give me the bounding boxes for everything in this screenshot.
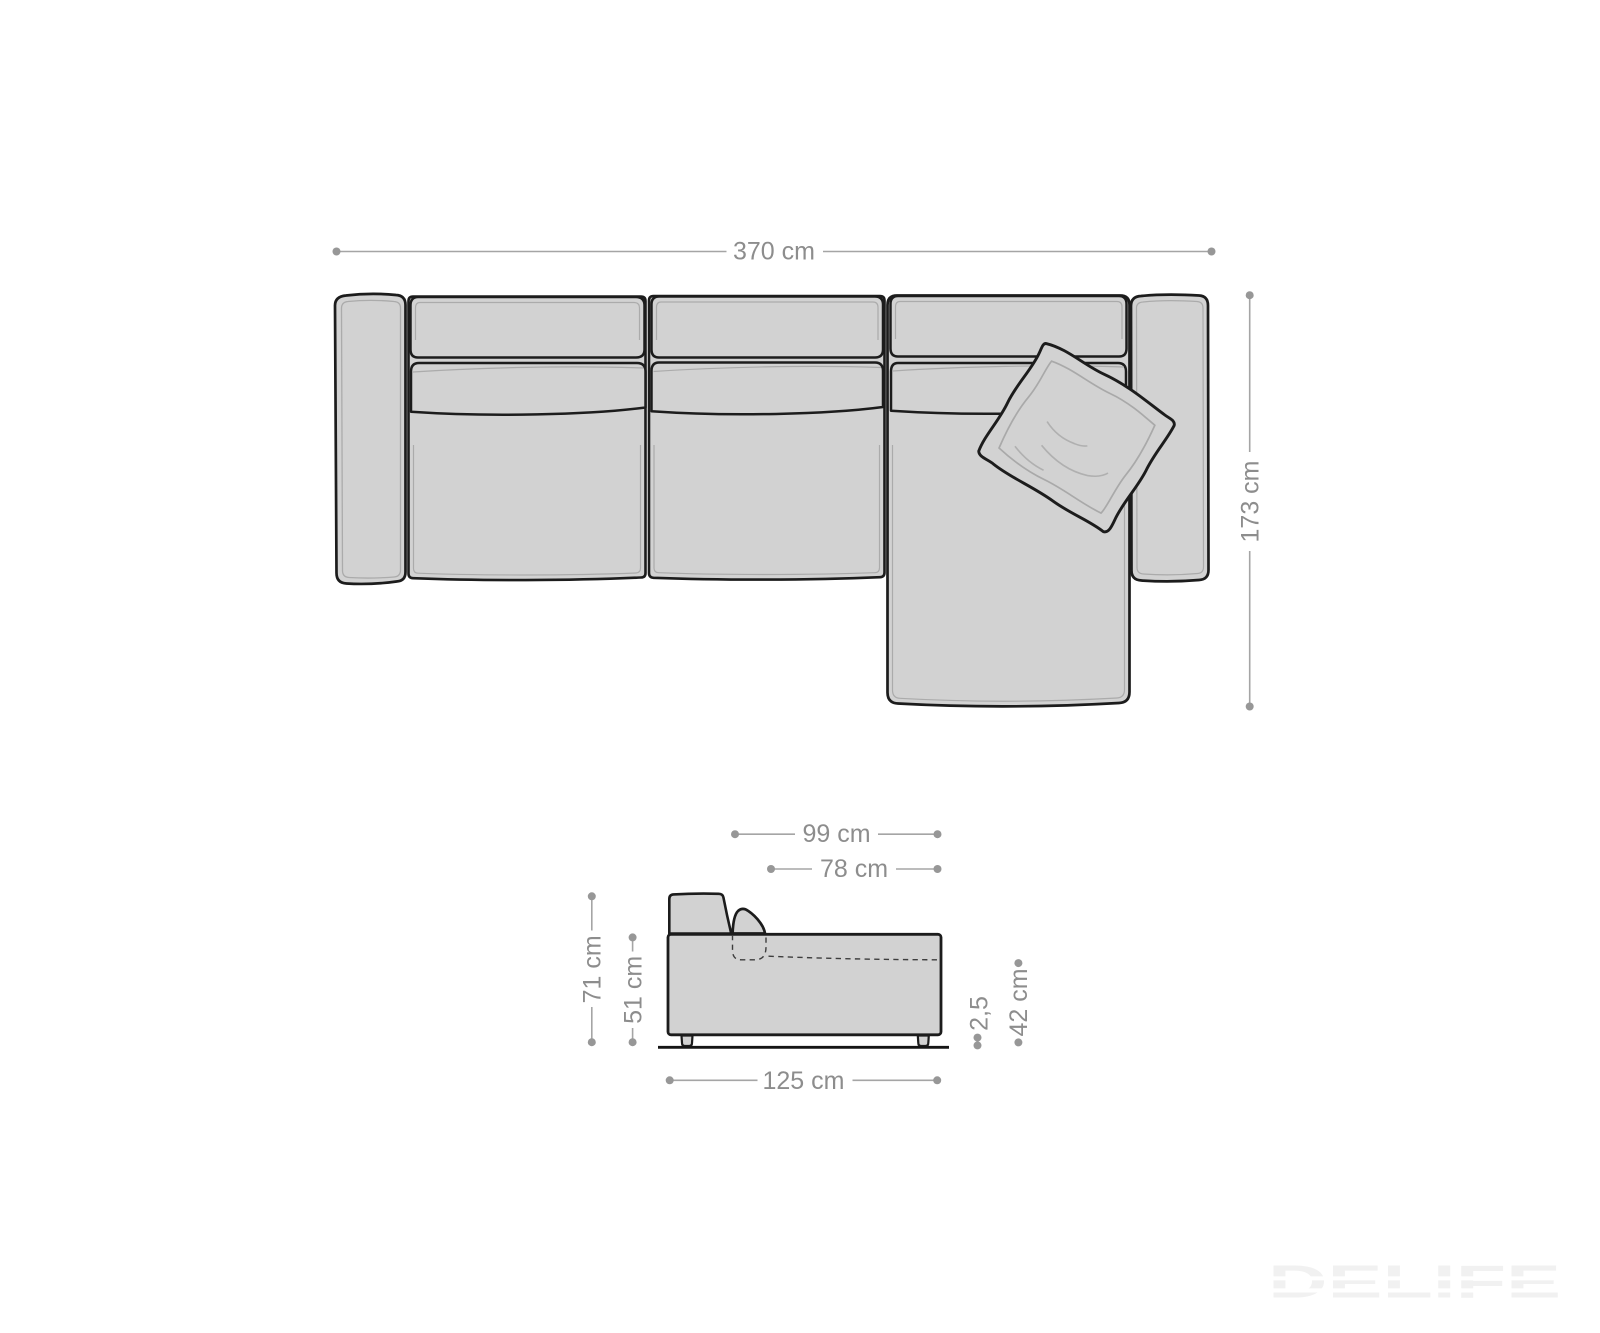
svg-text:99 cm: 99 cm: [802, 820, 870, 848]
svg-text:DELIFE: DELIFE: [1268, 1256, 1561, 1308]
svg-text:173 cm: 173 cm: [1237, 461, 1265, 543]
svg-text:370 cm: 370 cm: [733, 238, 815, 266]
svg-text:51 cm: 51 cm: [619, 956, 647, 1024]
svg-text:71 cm: 71 cm: [579, 935, 607, 1003]
svg-text:125 cm: 125 cm: [763, 1067, 845, 1095]
svg-text:42 cm: 42 cm: [1005, 968, 1033, 1036]
svg-text:78 cm: 78 cm: [820, 855, 888, 883]
svg-text:2,5: 2,5: [966, 996, 994, 1031]
